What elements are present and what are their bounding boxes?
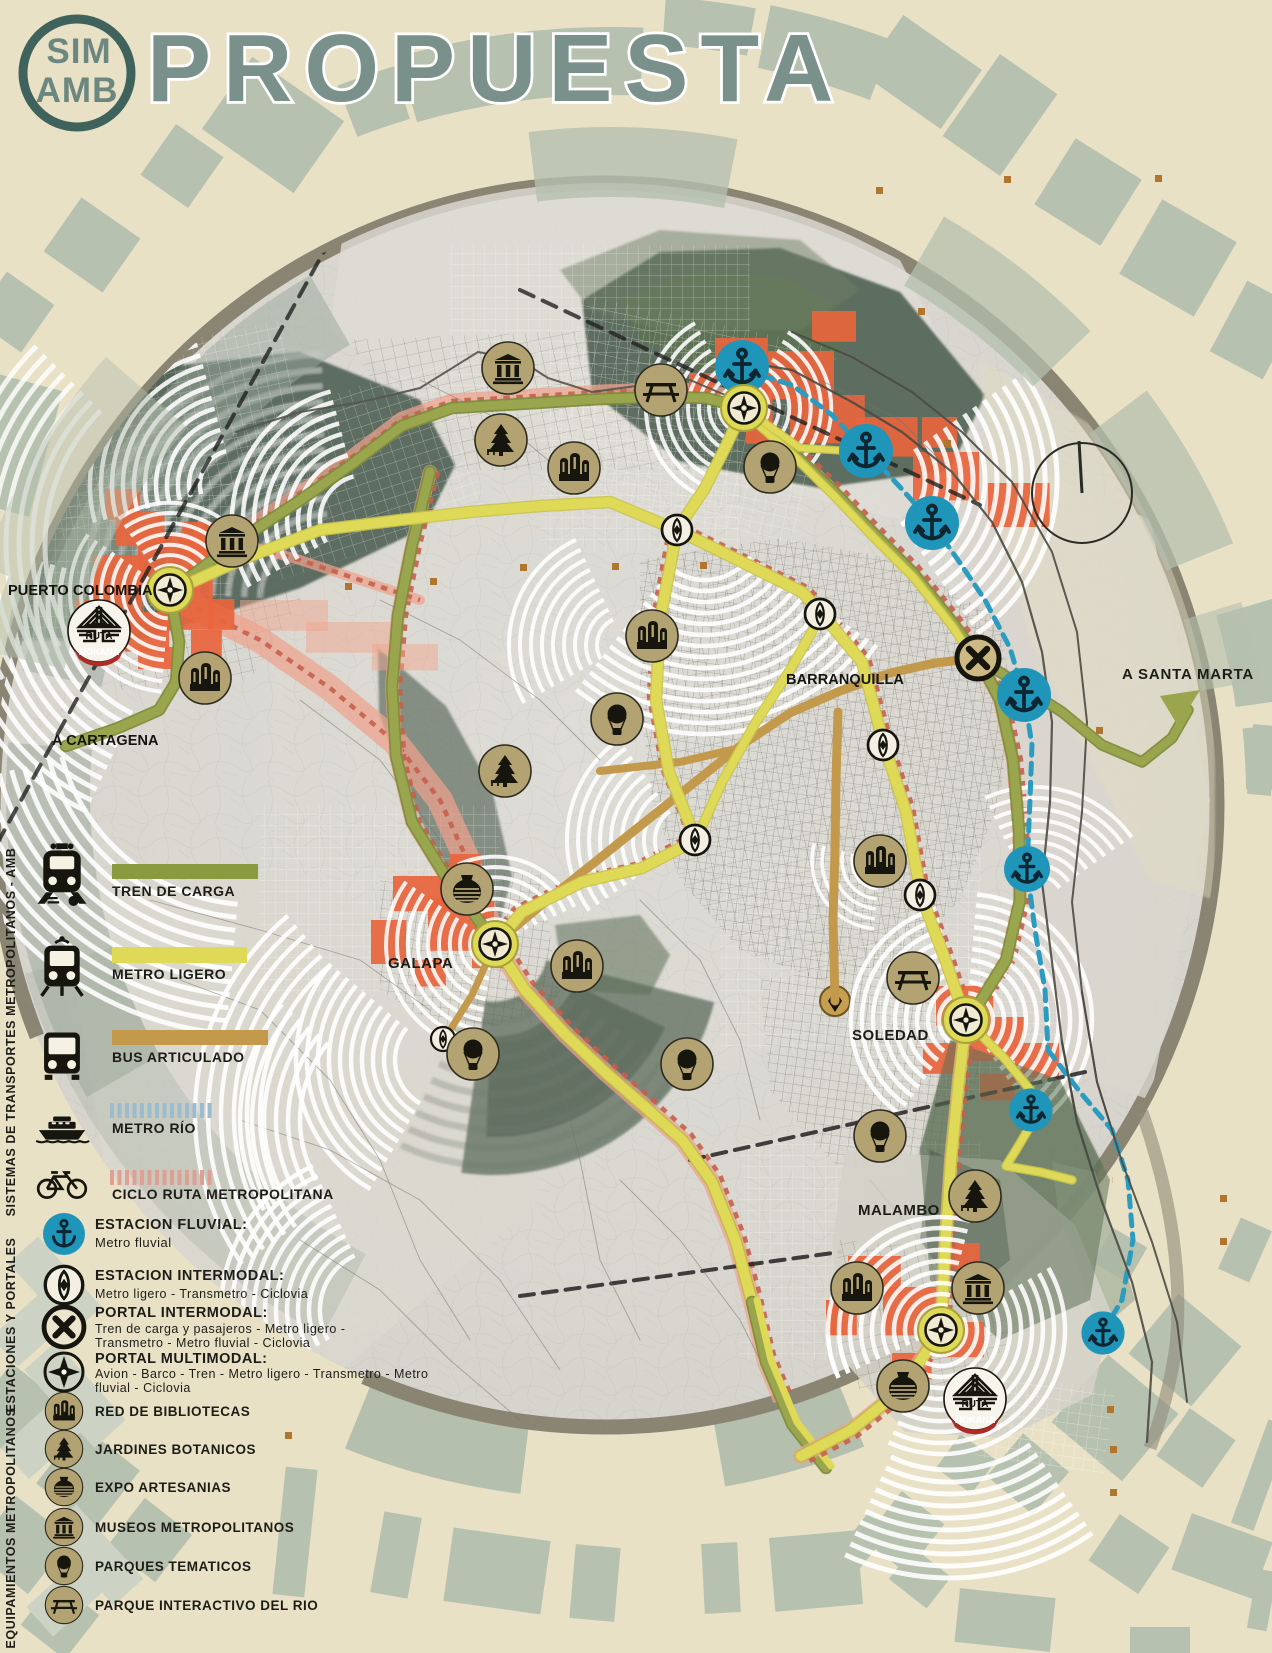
- svg-text:BARRANQUILLA: BARRANQUILLA: [786, 672, 904, 688]
- svg-text:ESTACIONES Y PORTALES: ESTACIONES Y PORTALES: [4, 1238, 18, 1413]
- svg-text:EQUIPAMIENTOS METROPOLITANOS: EQUIPAMIENTOS METROPOLITANOS: [4, 1407, 18, 1648]
- svg-text:PORTAL INTERMODAL:: PORTAL INTERMODAL:: [95, 1305, 268, 1321]
- svg-text:MALAMBO: MALAMBO: [858, 1202, 940, 1219]
- svg-text:METRO LIGERO: METRO LIGERO: [112, 966, 226, 982]
- svg-text:A CARTAGENA: A CARTAGENA: [52, 733, 159, 749]
- svg-text:PROPUESTA: PROPUESTA: [147, 15, 845, 122]
- svg-text:PORTAL MULTIMODAL:: PORTAL MULTIMODAL:: [95, 1351, 268, 1367]
- svg-text:Metro fluvial: Metro fluvial: [95, 1235, 172, 1250]
- svg-text:PARQUE INTERACTIVO DEL RIO: PARQUE INTERACTIVO DEL RIO: [95, 1598, 318, 1613]
- svg-text:PUERTO COLOMBIA: PUERTO COLOMBIA: [8, 583, 153, 599]
- svg-text:ESTACION INTERMODAL:: ESTACION INTERMODAL:: [95, 1268, 284, 1284]
- svg-text:MUSEOS METROPOLITANOS: MUSEOS METROPOLITANOS: [95, 1520, 294, 1535]
- svg-text:RED DE BIBLIOTECAS: RED DE BIBLIOTECAS: [95, 1404, 250, 1419]
- svg-text:TREN DE CARGA: TREN DE CARGA: [112, 883, 235, 899]
- svg-text:Transmetro - Metro fluvial - C: Transmetro - Metro fluvial - Ciclovia: [95, 1336, 310, 1350]
- svg-text:CICLO RUTA METROPOLITANA: CICLO RUTA METROPOLITANA: [112, 1186, 334, 1202]
- svg-text:SIM: SIM: [46, 32, 111, 71]
- svg-text:GALAPA: GALAPA: [388, 955, 453, 972]
- svg-text:EXPO ARTESANIAS: EXPO ARTESANIAS: [95, 1480, 231, 1495]
- svg-text:METRO RÍO: METRO RÍO: [112, 1120, 196, 1136]
- svg-text:A SANTA MARTA: A SANTA MARTA: [1122, 666, 1254, 683]
- svg-text:SOLEDAD: SOLEDAD: [852, 1027, 929, 1044]
- svg-text:AMB: AMB: [36, 71, 119, 110]
- svg-text:PARQUES TEMATICOS: PARQUES TEMATICOS: [95, 1559, 252, 1574]
- svg-text:fluvial - Ciclovia: fluvial - Ciclovia: [95, 1381, 191, 1395]
- svg-text:SISTEMAS DE TRANSPORTES METROP: SISTEMAS DE TRANSPORTES METROPOLITANOS -…: [4, 848, 18, 1217]
- svg-text:JARDINES BOTANICOS: JARDINES BOTANICOS: [95, 1442, 256, 1457]
- svg-text:Tren de carga y pasajeros - Me: Tren de carga y pasajeros - Metro ligero…: [95, 1322, 346, 1336]
- svg-text:BUS ARTICULADO: BUS ARTICULADO: [112, 1049, 244, 1065]
- svg-text:ESTACION FLUVIAL:: ESTACION FLUVIAL:: [95, 1217, 247, 1233]
- svg-text:Metro ligero - Transmetro - Ci: Metro ligero - Transmetro - Ciclovia: [95, 1287, 308, 1301]
- svg-text:Avion - Barco - Tren - Metro l: Avion - Barco - Tren - Metro ligero - Tr…: [95, 1367, 428, 1381]
